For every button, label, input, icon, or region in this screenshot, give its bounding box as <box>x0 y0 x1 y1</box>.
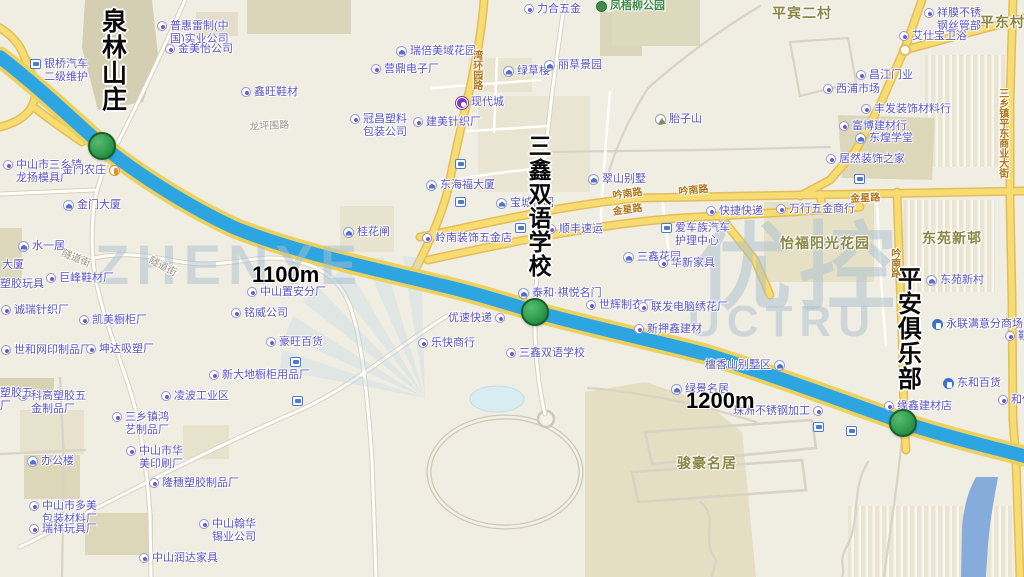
label-text: 凯美橱柜厂 <box>92 314 147 327</box>
bldg-icon <box>544 60 555 71</box>
dot-icon <box>139 553 149 563</box>
bldg-icon <box>18 241 29 252</box>
dot-icon <box>1 305 11 315</box>
map-label: 永联满意分商场 <box>932 318 1023 331</box>
map-label: 绿草楼 <box>503 65 550 78</box>
tree-icon <box>596 1 607 12</box>
bldg-icon <box>426 180 437 191</box>
bldg-icon <box>855 133 866 144</box>
label-text: 水一居 <box>32 240 65 253</box>
label-text: 巨峰鞋材厂 <box>59 272 114 285</box>
label-text: 建美针织厂 <box>426 116 481 129</box>
dot-icon <box>165 44 175 54</box>
dot-icon <box>826 154 836 164</box>
map-label: 现代城 <box>456 96 504 109</box>
dot-icon <box>634 324 644 334</box>
label-text: 金星路 <box>612 203 643 219</box>
dot-icon <box>86 344 96 354</box>
map-label: 东和百货 <box>943 377 1001 390</box>
label-text: 平宾二村 <box>772 5 832 22</box>
map-label: 爱车族汽车护理中心 <box>661 222 730 248</box>
dot-icon <box>209 370 219 380</box>
label-text: 银桥汽车二级维护 <box>44 58 88 84</box>
label-text: 平东村 <box>980 14 1024 31</box>
map-label: 平宾二村 <box>772 5 832 22</box>
bus-icon <box>292 396 303 406</box>
map-label: 瑞祥玩具厂 <box>29 523 97 536</box>
label-text: 1200m <box>686 388 755 414</box>
dot-icon <box>776 204 786 214</box>
map-label: 塑胶五厂 <box>0 387 33 413</box>
label-text: 丰发装饰材料行 <box>874 103 951 116</box>
label-text: 中山翰华锡业公司 <box>212 518 256 544</box>
dot-icon <box>149 478 159 488</box>
label-text: 桂花闸 <box>357 226 390 239</box>
label-text: 乐快商行 <box>431 337 475 350</box>
map-label: 联发电脑绣花厂 <box>638 301 728 314</box>
food-icon <box>109 165 120 176</box>
map-label: 办公楼 <box>27 455 74 468</box>
road-label: 吟南路 <box>678 184 709 199</box>
bus-icon <box>455 159 466 169</box>
dot-icon <box>638 302 648 312</box>
bus-icon <box>854 174 865 184</box>
dot-icon <box>586 300 596 310</box>
road-label: 龙坪围路 <box>249 120 290 134</box>
bus-icon <box>813 422 824 432</box>
dot-icon <box>1 345 11 355</box>
label-text: 艾仕宝卫浴 <box>912 30 967 43</box>
road-label: 三乡镇平东商业大街 <box>996 88 1008 178</box>
dot-icon <box>112 412 122 422</box>
map-label: 万行五金商行 <box>776 203 855 216</box>
map-label: 胎子山 <box>655 113 702 126</box>
label-text: 爱车族汽车护理中心 <box>675 222 730 248</box>
label-text: 大厦 <box>2 259 24 272</box>
map-label <box>452 158 466 169</box>
label-text: 三乡镇鸿艺制品厂 <box>125 411 169 437</box>
label-text: 联发电脑绣花厂 <box>651 301 728 314</box>
dot-icon <box>247 287 257 297</box>
label-text: 诚瑞针织厂 <box>14 304 69 317</box>
map-label: 鞋材 <box>1005 330 1024 343</box>
map-label: 三乡镇鸿艺制品厂 <box>112 411 169 437</box>
dot-icon <box>161 391 171 401</box>
map-label: 翠山别墅 <box>588 173 646 186</box>
dot-icon <box>506 348 516 358</box>
dot-icon <box>241 87 251 97</box>
dot-icon <box>3 160 13 170</box>
label-text: 湾环园路 <box>470 50 482 90</box>
label-text: 檀香山别墅区 <box>705 359 771 372</box>
label-text: 鞋材 <box>1018 330 1024 343</box>
label-text: 泉林山庄 <box>97 8 127 112</box>
bldg-icon <box>623 252 634 263</box>
map-label <box>452 196 466 207</box>
label-text: 华新家具 <box>671 257 715 270</box>
dot-icon <box>157 21 167 31</box>
label-text: 吟南路 <box>612 187 643 203</box>
shop-icon <box>943 378 954 389</box>
dot-icon <box>861 104 871 114</box>
bldg-icon <box>496 198 507 209</box>
map-label: 岭南装饰五金店 <box>422 232 512 245</box>
label-text: 骏豪名居 <box>677 455 737 472</box>
map-label: 新大地橱柜用品厂 <box>209 369 310 382</box>
road-label: 湾环园路 <box>470 50 482 90</box>
map-label: 昌江门业 <box>856 69 913 82</box>
dot-icon <box>46 273 56 283</box>
label-text: 优速快递 <box>448 312 492 325</box>
place-label: 三鑫双语学校 <box>524 134 551 278</box>
map-label <box>851 173 865 184</box>
map-label: 中山市华美印刷厂 <box>126 445 183 471</box>
label-text: 办公楼 <box>41 455 74 468</box>
map-label: 世和网印制品厂 <box>1 344 91 357</box>
label-text: 东苑新邨 <box>922 230 982 247</box>
map-label: 快捷快递 <box>706 205 763 218</box>
bldg-icon <box>63 200 74 211</box>
label-text: 顺丰速运 <box>559 223 603 236</box>
label-text: 东苑新村 <box>940 274 984 287</box>
label-text: 西浦市场 <box>836 83 880 96</box>
label-text: 翠山别墅 <box>602 173 646 186</box>
label-text: 金门农庄 <box>62 164 106 177</box>
bldg-icon <box>588 174 599 185</box>
map-label: 金门大厦 <box>63 199 121 212</box>
label-text: 三鑫双语学校 <box>524 134 551 278</box>
map-label: 檀香山别墅区 <box>705 359 785 372</box>
bus-icon <box>290 357 301 367</box>
place-label: 泉林山庄 <box>97 8 127 112</box>
dot-icon <box>418 338 428 348</box>
label-text: 居然装饰之家 <box>839 153 905 166</box>
map-label: 西浦市场 <box>823 83 880 96</box>
map-label: 豪旺百货 <box>266 336 323 349</box>
bus-icon <box>846 426 857 436</box>
label-text: 豪旺百货 <box>279 336 323 349</box>
map-label: 和信 <box>998 394 1024 407</box>
map-label: 中山翰华锡业公司 <box>199 518 256 544</box>
dot-icon <box>29 524 39 534</box>
map-viewport[interactable]: 银桥汽车二级维护普惠雷制(中国)实业公司金美怡公司鑫旺鞋材龙坪围路中山市三乡镇龙… <box>0 0 1024 577</box>
map-label <box>843 425 857 436</box>
label-text: 岭南装饰五金店 <box>435 232 512 245</box>
map-label <box>289 395 303 406</box>
dot-icon <box>79 315 89 325</box>
label-text: 和信 <box>1011 394 1024 407</box>
distance-label: 1100m <box>252 262 319 288</box>
dot-icon <box>266 337 276 347</box>
map-label: 瑞倍美域花园 <box>396 45 476 58</box>
label-text: 金美怡公司 <box>178 43 233 56</box>
map-label: 大厦 <box>0 259 24 272</box>
map-label <box>810 421 824 432</box>
label-layer: 银桥汽车二级维护普惠雷制(中国)实业公司金美怡公司鑫旺鞋材龙坪围路中山市三乡镇龙… <box>0 0 1024 577</box>
dot-icon <box>126 446 136 456</box>
dot-icon <box>199 519 209 529</box>
dot-icon <box>839 121 849 131</box>
bldg-icon <box>518 288 529 299</box>
map-label: 凤梧柳公园 <box>596 0 665 13</box>
map-label: 冠昌塑料包装公司 <box>350 113 407 139</box>
map-label: 桂花闸 <box>343 226 390 239</box>
label-text: 隆穗塑胶制品厂 <box>162 477 239 490</box>
bus-icon <box>30 59 41 69</box>
map-label: 中山润达家具 <box>139 552 218 565</box>
label-text: 龙坪围路 <box>249 120 290 134</box>
map-label: 塑胶玩具 <box>0 278 44 291</box>
label-text: 怡福阳光花园 <box>780 235 870 252</box>
map-label: 营鼎电子厂 <box>371 63 439 76</box>
label-text: 科高塑胶五金制品厂 <box>31 390 86 416</box>
label-text: 胎子山 <box>669 113 702 126</box>
map-label: 银桥汽车二级维护 <box>30 58 88 84</box>
map-label: 鑫旺鞋材 <box>241 86 298 99</box>
map-label: 丽草景园 <box>544 59 602 72</box>
map-label: 三鑫双语学校 <box>506 347 585 360</box>
map-label <box>287 356 301 367</box>
label-text: 东海福大厦 <box>440 179 495 192</box>
map-label: 东苑新邨 <box>922 230 982 247</box>
label-text: 永联满意分商场 <box>946 318 1023 331</box>
map-label: 诚瑞针织厂 <box>1 304 69 317</box>
distance-label: 1200m <box>686 388 755 414</box>
map-label: 东海福大厦 <box>426 179 495 192</box>
bus-icon <box>455 197 466 207</box>
map-label: 华新家具 <box>658 257 715 270</box>
label-text: 瑞倍美域花园 <box>410 45 476 58</box>
road-label: 金星路 <box>612 203 643 219</box>
label-text: 瑞祥玩具厂 <box>42 523 97 536</box>
dot-icon <box>823 84 833 94</box>
dot-icon <box>371 64 381 74</box>
map-label: 丰发装饰材料行 <box>861 103 951 116</box>
bldg-icon <box>503 66 514 77</box>
dot-icon <box>495 313 505 323</box>
label-text: 平安俱乐部 <box>892 266 920 391</box>
map-label: 怡福阳光花园 <box>780 235 870 252</box>
map-label: 坤达吸塑厂 <box>86 343 154 356</box>
label-text: 鑫旺鞋材 <box>254 86 298 99</box>
dot-icon <box>29 501 39 511</box>
dot-icon <box>856 70 866 80</box>
bus-icon <box>661 223 672 233</box>
dot-icon <box>658 258 668 268</box>
map-label: 建美针织厂 <box>413 116 481 129</box>
route-marker[interactable] <box>88 132 116 160</box>
road-label: 吟南路 <box>612 187 643 203</box>
label-text: 东和百货 <box>957 377 1001 390</box>
map-label: 骏豪名居 <box>677 455 737 472</box>
label-text: 铭威公司 <box>244 307 288 320</box>
label-text: 营鼎电子厂 <box>384 63 439 76</box>
label-text: 世和网印制品厂 <box>14 344 91 357</box>
label-text: 快捷快递 <box>719 205 763 218</box>
map-label: 平东村 <box>980 14 1024 31</box>
label-text: 金星路 <box>850 192 881 205</box>
map-label: 新押鑫建材 <box>634 323 702 336</box>
map-label: 凌波工业区 <box>161 390 229 403</box>
dot-icon <box>813 406 823 416</box>
label-text: 力合五金 <box>537 3 581 16</box>
bldg-icon <box>27 456 38 467</box>
label-text: 冠昌塑料包装公司 <box>363 113 407 139</box>
map-label: 优速快递 <box>448 312 505 325</box>
dot-icon <box>422 233 432 243</box>
dot-icon <box>524 4 534 14</box>
label-text: 昌江门业 <box>869 69 913 82</box>
bldg-icon <box>671 384 682 395</box>
place-label: 平安俱乐部 <box>892 266 920 391</box>
label-text: 三乡镇平东商业大街 <box>996 88 1008 178</box>
label-text: 中山润达家具 <box>152 552 218 565</box>
map-label: 顺丰速运 <box>546 223 603 236</box>
map-label: 金美怡公司 <box>165 43 233 56</box>
shop-icon <box>932 319 943 330</box>
label-text: 凤梧柳公园 <box>610 0 665 13</box>
map-label: 艾仕宝卫浴 <box>899 30 967 43</box>
map-label: 乐快商行 <box>418 337 475 350</box>
label-text: 塑胶玩具 <box>0 278 44 291</box>
label-text: 1100m <box>252 262 319 288</box>
mount-icon <box>655 114 666 125</box>
label-text: 万行五金商行 <box>789 203 855 216</box>
dot-icon <box>231 308 241 318</box>
label-text: 金门大厦 <box>77 199 121 212</box>
label-text: 三鑫双语学校 <box>519 347 585 360</box>
map-label: 隆穗塑胶制品厂 <box>149 477 239 490</box>
dot-icon <box>924 8 934 18</box>
label-text: 新押鑫建材 <box>647 323 702 336</box>
bldg-icon <box>343 227 354 238</box>
map-label: 水一居 <box>18 240 65 253</box>
label-text: 吟南路 <box>678 184 709 199</box>
map-label: 凯美橱柜厂 <box>79 314 147 327</box>
label-text: 隧道街 <box>60 248 92 270</box>
bldg-icon <box>396 46 407 57</box>
dot-icon <box>899 31 909 41</box>
dot-icon <box>998 395 1008 405</box>
map-label: 力合五金 <box>524 3 581 16</box>
label-text: 新大地橱柜用品厂 <box>222 369 310 382</box>
label-text: 丽草景园 <box>558 59 602 72</box>
label-text: 凌波工业区 <box>174 390 229 403</box>
road-label: 隧道街 <box>60 248 92 270</box>
label-text: 东煌学堂 <box>869 132 913 145</box>
route-marker[interactable] <box>889 409 917 437</box>
road-label: 金星路 <box>850 192 881 205</box>
map-label: 居然装饰之家 <box>826 153 905 166</box>
bldg-icon <box>774 360 785 371</box>
dot-icon <box>350 114 360 124</box>
dot-icon <box>884 401 894 411</box>
dot-icon <box>1005 331 1015 341</box>
label-text: 塑胶五厂 <box>0 387 33 413</box>
map-label: 东苑新村 <box>926 274 984 287</box>
dot-icon <box>706 206 716 216</box>
bldg-icon <box>926 275 937 286</box>
metro-icon <box>456 97 468 109</box>
label-text: 坤达吸塑厂 <box>99 343 154 356</box>
map-label: 铭威公司 <box>231 307 288 320</box>
dot-icon <box>413 117 423 127</box>
map-label: 金门农庄 <box>62 164 120 177</box>
label-text: 中山市华美印刷厂 <box>139 445 183 471</box>
map-label: 东煌学堂 <box>855 132 913 145</box>
route-marker[interactable] <box>521 298 549 326</box>
map-label: 巨峰鞋材厂 <box>46 272 114 285</box>
label-text: 现代城 <box>471 96 504 109</box>
